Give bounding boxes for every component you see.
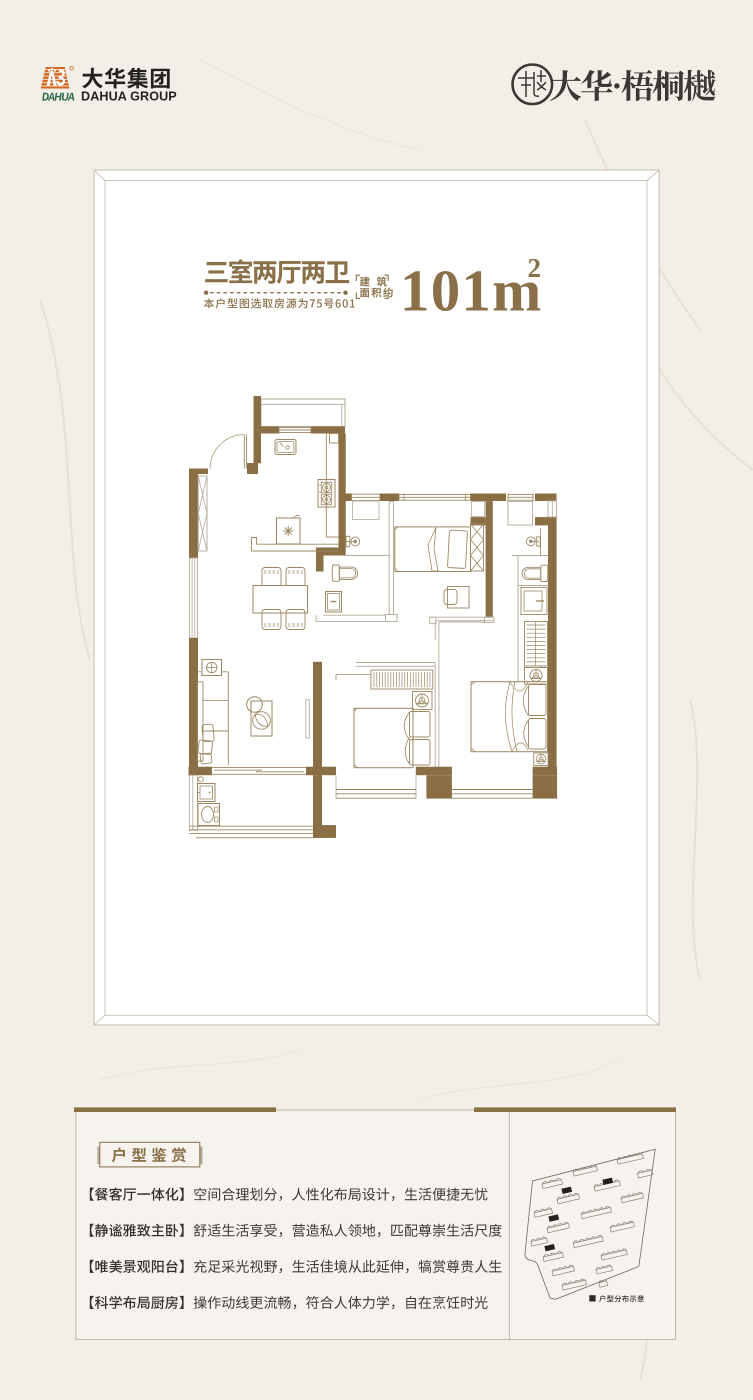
svg-text:2: 2: [528, 253, 542, 283]
svg-text:DAHUA GROUP: DAHUA GROUP: [81, 90, 177, 104]
svg-text:101m: 101m: [400, 258, 542, 324]
